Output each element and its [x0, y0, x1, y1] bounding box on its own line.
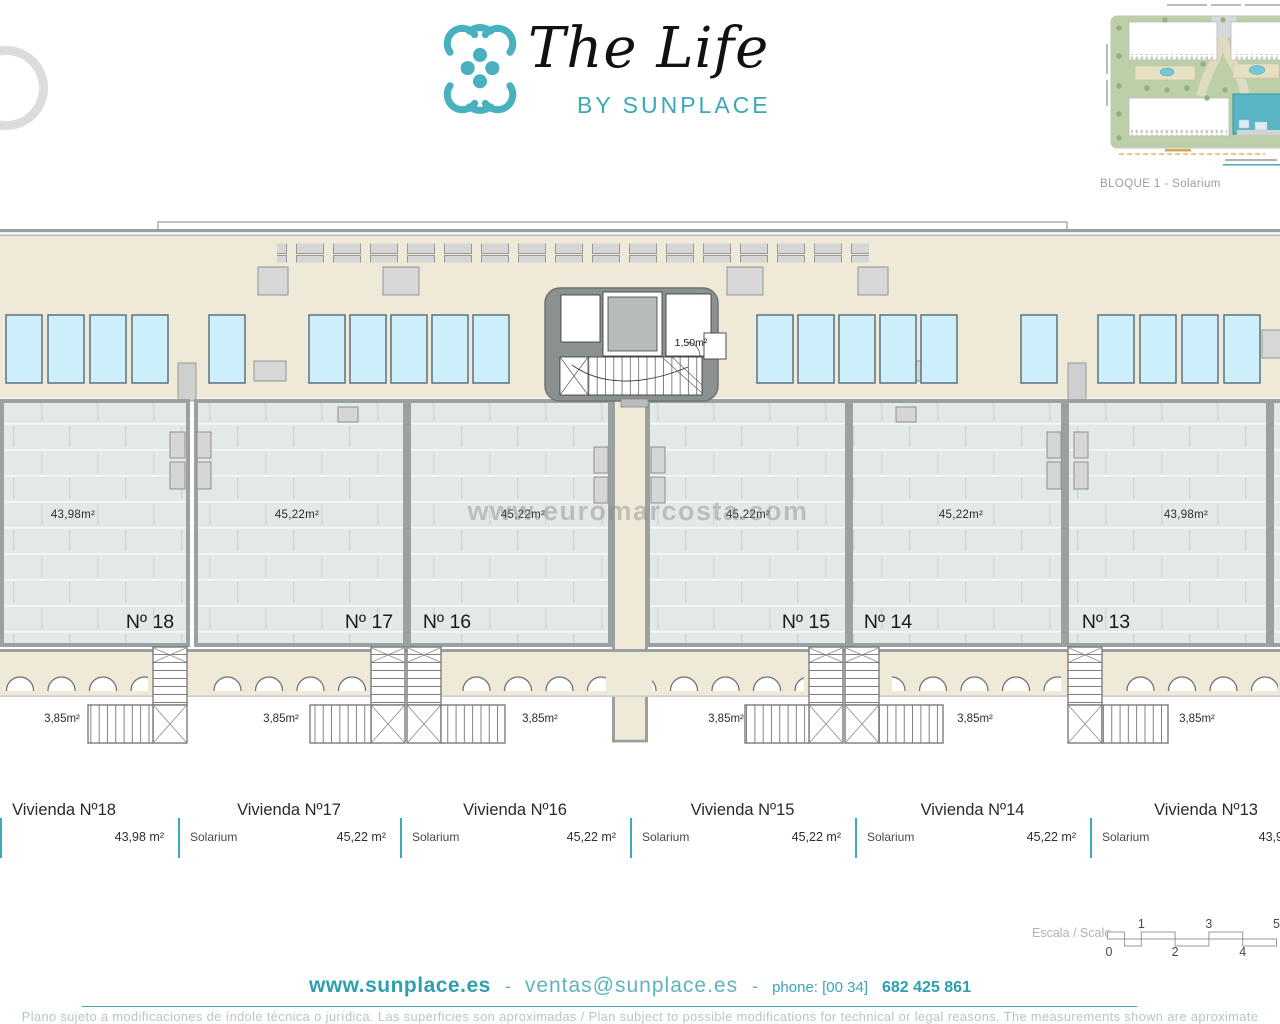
roof-vents-row: [277, 244, 869, 263]
roof-unit: [727, 267, 763, 295]
scale-label: Escala / Scale: [1032, 926, 1111, 940]
cell-row-label: Solarium: [867, 830, 914, 844]
roof-unit: [383, 267, 419, 295]
wall-stub: [1068, 363, 1086, 401]
roof-unit: [258, 267, 288, 295]
plan-sheet: The Life BY SUNPLACE: [0, 0, 1280, 1024]
footer-contact: www.sunplace.es - ventas@sunplace.es - p…: [0, 974, 1280, 998]
unit-number-label: Nº 16: [423, 611, 471, 633]
cell-title: Vivienda Nº16: [400, 798, 630, 824]
table-divider: [178, 818, 180, 858]
stair-area-label: 3,85m²: [263, 713, 299, 725]
corner-ring-decoration: [0, 46, 48, 130]
table-cell-17: Vivienda Nº17 Solarium 45,22 m²: [178, 798, 400, 860]
footer-separator: -: [752, 976, 758, 997]
cell-title: Vivienda Nº15: [630, 798, 855, 824]
terrace-area-label: 45,22m²: [275, 509, 319, 521]
footer-separator: -: [505, 976, 511, 997]
terrace-18: [2, 401, 188, 645]
elevator-car: [608, 297, 657, 351]
table-divider: [855, 818, 857, 858]
unit-number-label: Nº 14: [864, 611, 912, 633]
cell-value: 45,22 m²: [792, 830, 841, 844]
core-area-label: 1,50m²: [675, 337, 708, 349]
unit-number-label: Nº 13: [1082, 611, 1130, 633]
cell-value: 43,98 m²: [115, 830, 164, 844]
table-cell-13: Vivienda Nº13 Solarium 43,98 m²: [1090, 798, 1280, 860]
cell-value: 45,22 m²: [1027, 830, 1076, 844]
svg-text:0: 0: [1106, 945, 1113, 958]
logo-subtitle: BY SUNPLACE: [577, 92, 771, 119]
stair-area-label: 3,85m²: [522, 713, 558, 725]
terrace-next: [1272, 401, 1280, 645]
svg-text:4: 4: [1239, 945, 1246, 958]
watermark: www.euromarcosta.com: [466, 496, 808, 526]
unit-number-label: Nº 17: [345, 611, 393, 633]
core-room: [561, 295, 600, 342]
wall-stub: [178, 363, 196, 401]
table-cell-18: Vivienda Nº18 Solarium 43,98 m²: [0, 798, 178, 860]
terrace-14: [851, 401, 1063, 645]
svg-text:2: 2: [1172, 945, 1179, 958]
svg-text:1: 1: [1138, 917, 1145, 931]
cell-row-label: Solarium: [1102, 830, 1149, 844]
roof-unit: [858, 267, 888, 295]
terrace-area-label: 45,22m²: [939, 509, 983, 521]
stair-area-label: 3,85m²: [44, 713, 80, 725]
floor-plan: 1,50m² 43,98m² 45,22m² 45,22m² 45,22m² 4…: [0, 215, 1280, 790]
cell-title: Vivienda Nº18: [0, 798, 178, 824]
siteplan-caption: BLOQUE 1 - Solarium: [1100, 178, 1221, 190]
table-divider: [1090, 818, 1092, 858]
unit-number-label: Nº 15: [782, 611, 830, 633]
cell-title: Vivienda Nº17: [178, 798, 400, 824]
roof-parapet: [158, 222, 1067, 230]
stair-area-label: 3,85m²: [957, 713, 993, 725]
cell-value: 45,22 m²: [567, 830, 616, 844]
scale-bar: 1 3 5 0 2 4: [1106, 916, 1280, 958]
logo-title: The Life: [528, 16, 769, 81]
table-cell-14: Vivienda Nº14 Solarium 45,22 m²: [855, 798, 1090, 860]
cell-value: 43,98 m²: [1259, 830, 1280, 844]
roof-unit: [254, 361, 286, 381]
cell-title: Vivienda Nº13: [1090, 798, 1280, 824]
cell-row-label: Solarium: [642, 830, 689, 844]
terrace-area-label: 43,98m²: [1164, 509, 1208, 521]
footer-divider-line: [82, 1006, 1137, 1007]
table-cell-15: Vivienda Nº15 Solarium 45,22 m²: [630, 798, 855, 860]
stair-core: 1,50m²: [545, 288, 726, 407]
table-divider: [630, 818, 632, 858]
stair-area-label: 3,85m²: [708, 713, 744, 725]
top-wall: [0, 229, 1280, 232]
table-cell-16: Vivienda Nº16 Solarium 45,22 m²: [400, 798, 630, 860]
cell-title: Vivienda Nº14: [855, 798, 1090, 824]
table-divider: [400, 818, 402, 858]
siteplan-thumbnail: [1105, 2, 1280, 170]
cell-row-label: Solarium: [190, 830, 237, 844]
terrace-13: [1067, 401, 1268, 645]
stair-area-label: 3,85m²: [1179, 713, 1215, 725]
footer-phone-number[interactable]: 682 425 861: [882, 979, 971, 997]
terrace-17: [196, 401, 405, 645]
svg-text:3: 3: [1205, 917, 1212, 931]
table-divider: [0, 818, 2, 858]
terrace-area-label: 43,98m²: [51, 509, 95, 521]
unit-number-label: Nº 18: [126, 611, 174, 633]
roof-unit: [1262, 330, 1280, 358]
footer-phone-label: phone: [00 34]: [772, 979, 868, 996]
footer-website-link[interactable]: www.sunplace.es: [309, 974, 491, 998]
cell-value: 45,22 m²: [337, 830, 386, 844]
disclaimer-text: Plano sujeto a modificaciones de índole …: [0, 1009, 1280, 1024]
sunplace-logo-icon: [436, 22, 524, 116]
cell-row-label: Solarium: [412, 830, 459, 844]
svg-text:5: 5: [1273, 917, 1280, 931]
footer-email-link[interactable]: ventas@sunplace.es: [525, 974, 738, 998]
